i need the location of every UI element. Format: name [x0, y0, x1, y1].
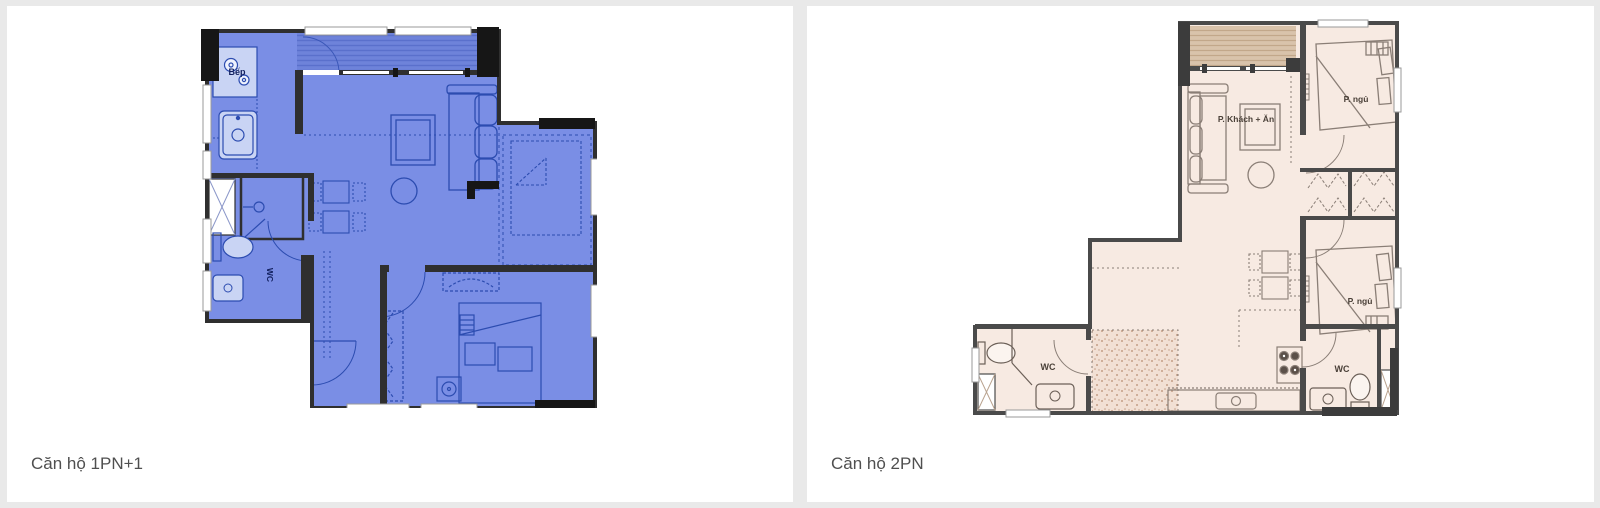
floorplan-caption-2pn: Căn hộ 2PN [831, 454, 924, 474]
bedroom-1-label: P. ngủ [1344, 94, 1369, 104]
floorplan-image-1pn1: Bếp WC [197, 23, 597, 408]
entry-textured-floor [1092, 330, 1178, 413]
living-dining-label: P. Khách + Ăn [1218, 114, 1274, 124]
floorplan-image-2pn: P. Khách + Ăn [950, 18, 1405, 418]
kitchen-label: Bếp [228, 67, 246, 77]
floorplan-card-1pn1[interactable]: Bếp WC [7, 6, 793, 502]
balcony [1190, 26, 1296, 68]
floorplan-drawing-1pn1: Bếp WC [197, 23, 597, 408]
bedroom-2-label: P. ngủ [1348, 296, 1373, 306]
wc1-label: WC [1041, 362, 1056, 372]
floorplan-caption-1pn1: Căn hộ 1PN+1 [31, 454, 143, 474]
floorplan-drawing-2pn: P. Khách + Ăn [950, 18, 1405, 418]
balcony [297, 31, 499, 73]
wc2-label: WC [1335, 364, 1350, 374]
floorplan-card-2pn[interactable]: P. Khách + Ăn [807, 6, 1594, 502]
wc-label: WC [265, 268, 275, 282]
